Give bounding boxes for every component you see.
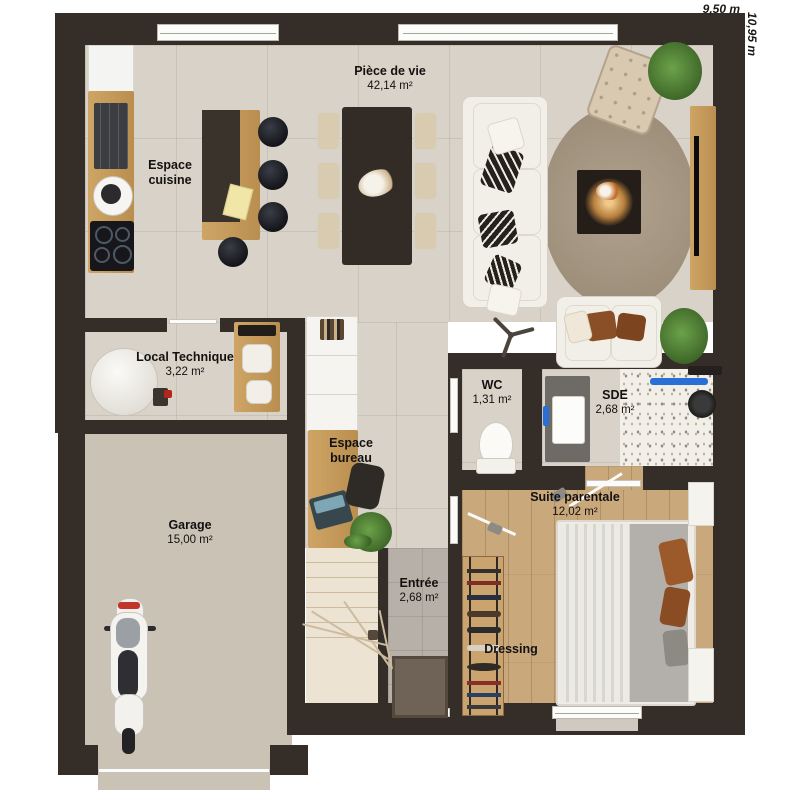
dining-chair [317,212,340,250]
bedroom-door [450,496,458,544]
wall-local-technique-left [55,318,167,332]
staircase [306,548,378,715]
shower-head [688,390,716,418]
room-area: 15,00 m² [135,533,245,547]
room-area: 2,68 m² [390,591,448,605]
dimension-height: 10,95 m [745,12,759,92]
label-suite-parentale: Suite parentale 12,02 m² [495,490,655,519]
utility-chair [246,380,272,404]
loveseat-pillow-brown [615,312,646,342]
shelf-deco [320,319,344,340]
room-name: Espace cuisine [128,158,212,189]
bed-duvet-white [560,524,630,702]
room-area: 42,14 m² [300,79,480,93]
room-area: 1,31 m² [460,393,524,407]
room-name: Entrée [390,576,448,591]
floor-plan: Pièce de vie 42,14 m² Espace cuisine Loc… [0,0,800,800]
local-technique-door [169,319,217,324]
room-name: Garage [135,518,245,533]
bedroom-bench [688,648,714,702]
room-name: Espace bureau [312,436,390,467]
heater-valve-red [164,390,172,398]
toilet-tank [476,458,516,474]
plant-loveseat [660,308,708,364]
wc-door [450,378,458,433]
wall-hall-vertical [287,332,305,735]
room-name: Pièce de vie [300,64,480,79]
label-garage: Garage 15,00 m² [135,518,245,547]
ceiling-fan-icon [508,332,514,338]
room-name: Dressing [476,642,546,657]
label-sde: SDE 2,68 m² [575,388,655,417]
room-area: 12,02 m² [495,505,655,519]
bar-stool [258,117,288,147]
cooktop-burner [115,227,130,242]
dining-chair [414,212,437,250]
moto-red-stripe [118,602,140,609]
dining-chair [414,162,437,200]
dining-chair [414,112,437,150]
fireplace-flowers [596,182,622,200]
sde-bedroom-door [586,480,641,487]
wall-left [55,13,85,433]
tv-screen [694,136,699,256]
label-piece-de-vie: Pièce de vie 42,14 m² [300,64,480,93]
cooker-hood [94,103,128,169]
label-espace-bureau: Espace bureau [312,436,390,467]
shower-bar-blue [650,378,708,385]
food-processor-bowl [101,184,121,204]
cooktop-burner [94,247,110,263]
dining-chair [317,162,340,200]
label-local-technique: Local Technique 3,22 m² [100,350,270,379]
dimension-width: 9,50 m [660,2,740,16]
driveway [98,773,270,790]
room-name: WC [460,378,524,393]
bed-pillow-gray [662,629,690,667]
motorcycle [96,596,160,756]
wall-garage-left [58,420,85,775]
label-entree: Entrée 2,68 m² [390,576,448,605]
bedroom-window-sill [556,719,638,731]
label-dressing: Dressing [476,642,546,657]
label-wc: WC 1,31 m² [460,378,524,407]
cooktop-burner [113,245,132,264]
bar-stool [258,202,288,232]
wall-garage-top [58,420,298,434]
towel-bar-blue [543,406,549,426]
room-area: 3,22 m² [100,365,270,379]
nightstand [688,482,714,526]
cooktop-burner [95,226,113,244]
kitchen-window [157,24,279,41]
dining-chair [317,112,340,150]
shower-fitting [688,366,722,375]
living-window [398,24,618,41]
room-area: 2,68 m² [575,403,655,417]
bar-stool [218,237,248,267]
moto-seat [118,650,138,698]
bar-stool [258,160,288,190]
moto-windshield [116,618,140,648]
plant-stairs [344,534,372,549]
fridge [88,45,134,92]
utility-desk-items [238,325,276,336]
doormat [392,656,448,718]
plant-top-right [648,42,702,100]
room-name: Local Technique [100,350,270,365]
wall-wc-sde-divider [522,369,542,472]
bedroom-window [552,706,642,719]
label-espace-cuisine: Espace cuisine [128,158,212,189]
dressing-closet [462,556,504,716]
room-name: Suite parentale [495,490,655,505]
sofa-pillow-dark [477,209,518,249]
moto-rear-wheel [122,728,135,754]
room-name: SDE [575,388,655,403]
